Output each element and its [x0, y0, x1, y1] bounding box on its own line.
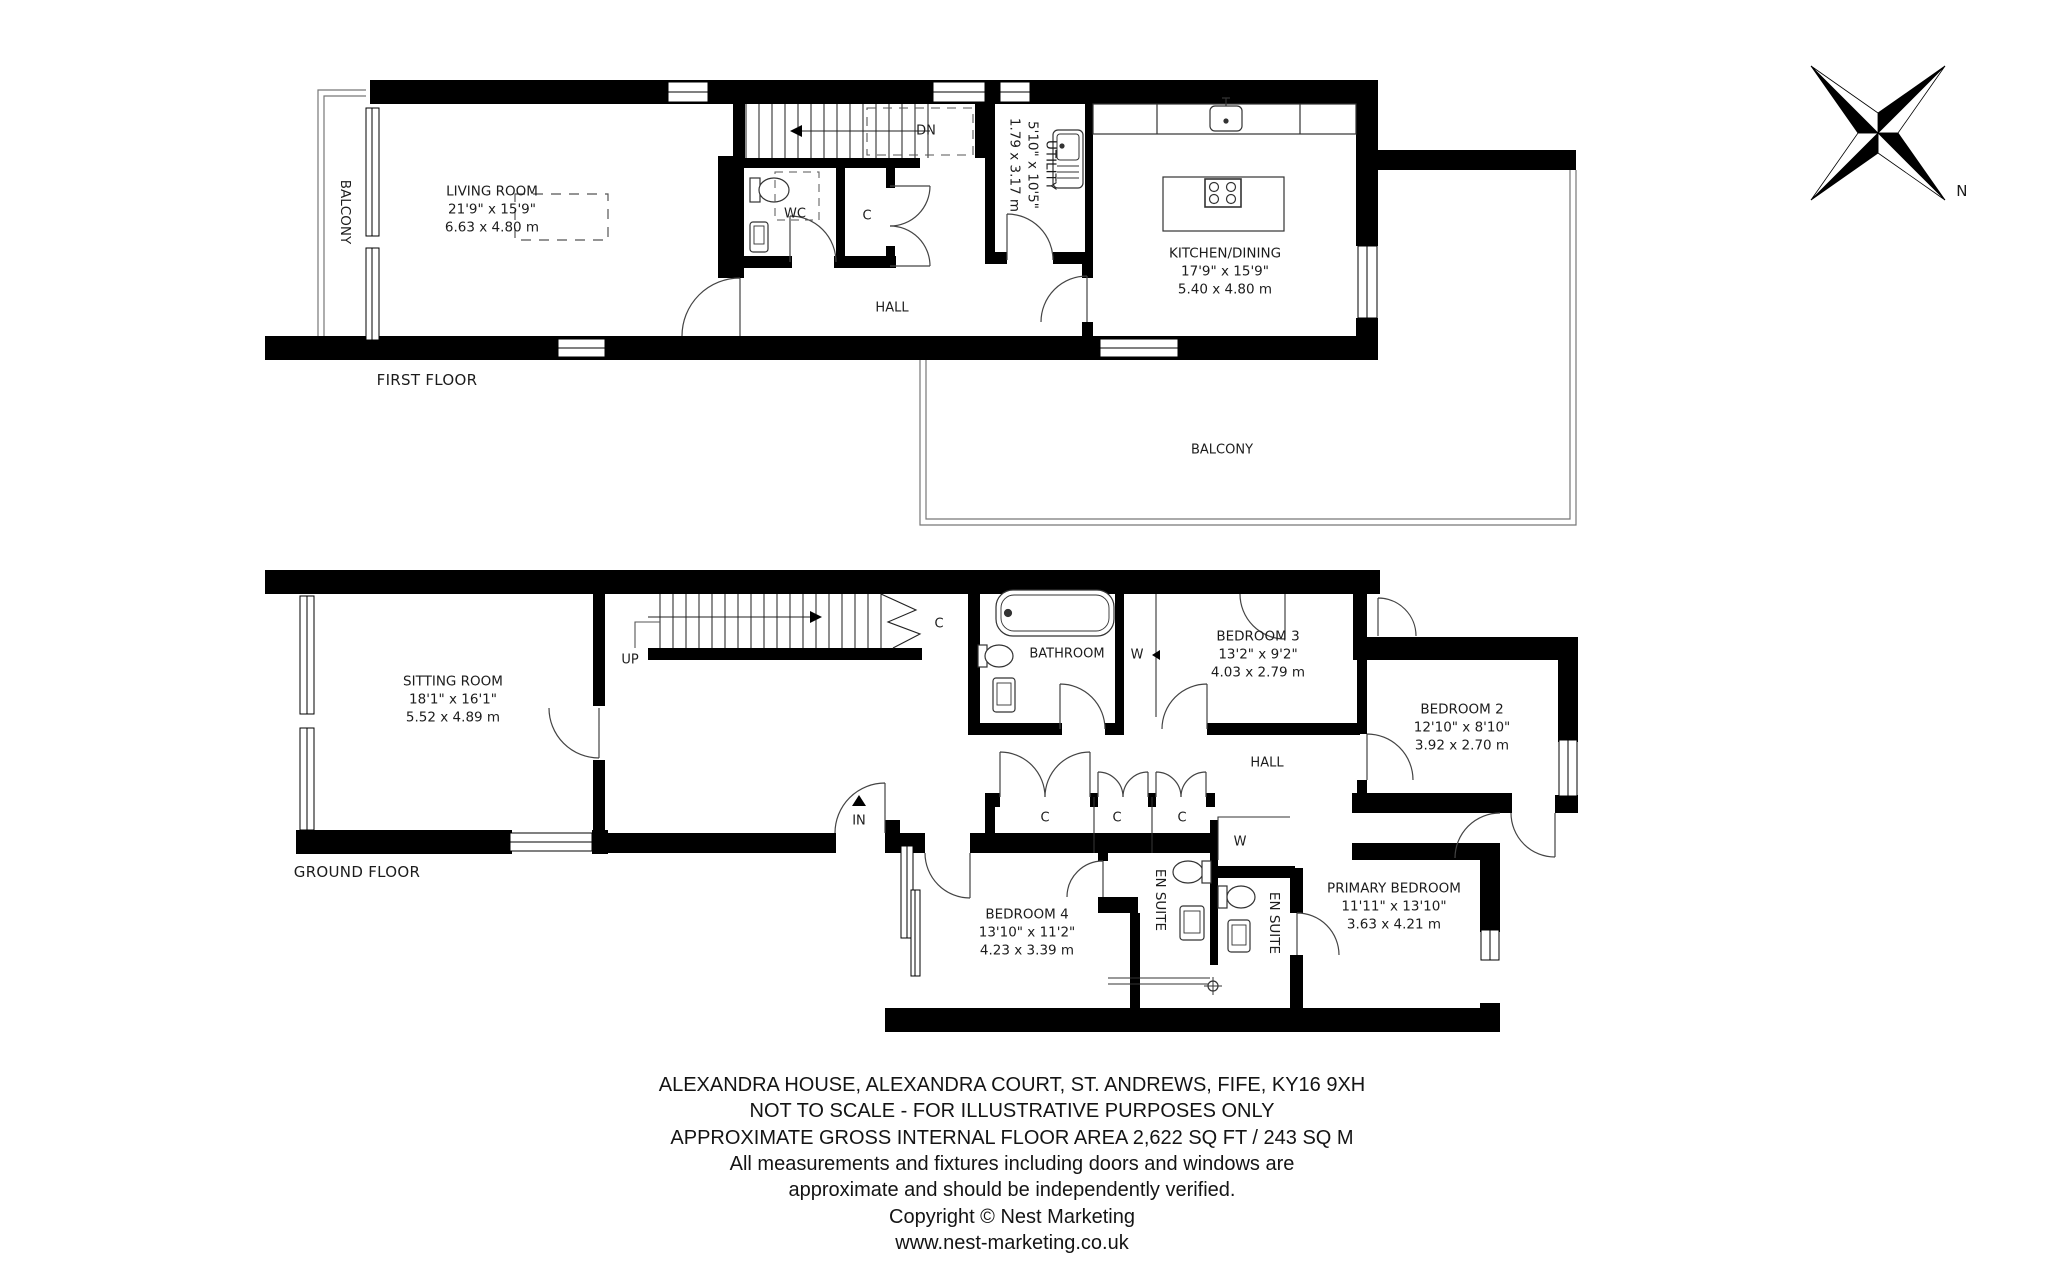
gf-cupboard-label-1: C — [934, 615, 943, 632]
wardrobe-label-2: W — [1234, 833, 1247, 850]
living-room-label: LIVING ROOM 21'9" x 15'9" 6.63 x 4.80 m — [445, 183, 539, 236]
room-dims-imperial: 11'11" x 13'10" — [1327, 898, 1461, 916]
ff-balcony-side-label: BALCONY — [335, 180, 353, 244]
room-dims-metric: 6.63 x 4.80 m — [445, 219, 539, 237]
room-dims-imperial: 12'10" x 8'10" — [1414, 719, 1511, 737]
footer-floor-area: APPROXIMATE GROSS INTERNAL FLOOR AREA 2,… — [670, 1127, 1353, 1150]
floorplan-canvas: BALCONY LIVING ROOM 21'9" x 15'9" 6.63 x… — [0, 0, 2048, 1279]
ensuite1-toilet — [1173, 861, 1203, 883]
ensuite2-cistern — [1218, 886, 1227, 908]
ground-floor-title: GROUND FLOOR — [294, 863, 420, 883]
room-name: PRIMARY BEDROOM — [1327, 880, 1461, 898]
compass-north-label: N — [1956, 182, 1968, 202]
room-dims-imperial: 13'2" x 9'2" — [1211, 646, 1305, 664]
ff-balcony-rear-label: BALCONY — [1191, 441, 1253, 458]
ground-floor-plan — [265, 570, 1578, 1032]
gf-in-arrowhead — [852, 795, 866, 806]
stairs-up-label: UP — [621, 651, 638, 668]
en-suite-label-2: EN SUITE — [1264, 892, 1282, 954]
room-name: BEDROOM 3 — [1211, 628, 1305, 646]
ff-dn-arrowhead — [790, 125, 802, 137]
gf-walls — [265, 570, 1578, 1032]
entrance-in-label: IN — [852, 812, 866, 829]
room-name: KITCHEN/DINING — [1169, 245, 1281, 263]
room-dims-metric: 3.92 x 2.70 m — [1414, 737, 1511, 755]
gf-cupboard-label-2: C — [1040, 809, 1049, 826]
sitting-room-label: SITTING ROOM 18'1" x 16'1" 5.52 x 4.89 m — [403, 673, 503, 726]
room-dims-metric: 3.63 x 4.21 m — [1327, 916, 1461, 934]
footer-disclaimer-scale: NOT TO SCALE - FOR ILLUSTRATIVE PURPOSES… — [750, 1100, 1275, 1123]
room-name: BEDROOM 4 — [979, 906, 1076, 924]
compass-rose — [1811, 66, 1945, 200]
footer-measurements-1: All measurements and fixtures including … — [730, 1153, 1295, 1176]
gf-cupboard-label-4: C — [1177, 809, 1186, 826]
first-floor-plan — [265, 80, 1576, 525]
utility-label: UTILITY 5'10" x 10'5" 1.79 x 3.17 m — [1005, 118, 1058, 212]
ff-hall-label: HALL — [875, 299, 908, 316]
gf-stairs — [635, 594, 920, 648]
wardrobe-label-1: W — [1131, 646, 1144, 663]
ff-stairs — [746, 104, 973, 158]
stairs-dn-label: DN — [916, 122, 936, 139]
room-dims-metric: 5.52 x 4.89 m — [403, 709, 503, 727]
room-dims-imperial: 13'10" x 11'2" — [979, 924, 1076, 942]
footer-copyright: Copyright © Nest Marketing — [889, 1206, 1135, 1229]
room-name: LIVING ROOM — [445, 183, 539, 201]
bedroom-2-label: BEDROOM 2 12'10" x 8'10" 3.92 x 2.70 m — [1414, 701, 1511, 754]
room-dims-imperial: 17'9" x 15'9" — [1169, 263, 1281, 281]
bathroom-toilet — [985, 645, 1013, 667]
room-dims-imperial: 18'1" x 16'1" — [403, 691, 503, 709]
room-dims-metric: 4.23 x 3.39 m — [979, 942, 1076, 960]
bedroom-3-label: BEDROOM 3 13'2" x 9'2" 4.03 x 2.79 m — [1211, 628, 1305, 681]
gf-hall-label: HALL — [1250, 754, 1283, 771]
room-dims-metric: 5.40 x 4.80 m — [1169, 281, 1281, 299]
footer-address: ALEXANDRA HOUSE, ALEXANDRA COURT, ST. AN… — [659, 1074, 1366, 1097]
room-name: SITTING ROOM — [403, 673, 503, 691]
bedroom-4-label: BEDROOM 4 13'10" x 11'2" 4.23 x 3.39 m — [979, 906, 1076, 959]
room-dims-metric: 4.03 x 2.79 m — [1211, 664, 1305, 682]
footer-website: www.nest-marketing.co.uk — [895, 1232, 1128, 1255]
room-dims-imperial: 21'9" x 15'9" — [445, 201, 539, 219]
room-name: UTILITY — [1041, 118, 1059, 212]
ff-cupboard-label: C — [862, 207, 871, 224]
room-dims-imperial: 5'10" x 10'5" — [1023, 118, 1041, 212]
wc-toilet — [759, 178, 789, 202]
first-floor-title: FIRST FLOOR — [377, 371, 478, 391]
room-dims-metric: 1.79 x 3.17 m — [1005, 118, 1023, 212]
footer-measurements-2: approximate and should be independently … — [789, 1179, 1236, 1202]
primary-bedroom-label: PRIMARY BEDROOM 11'11" x 13'10" 3.63 x 4… — [1327, 880, 1461, 933]
ensuite1-cistern — [1202, 861, 1211, 883]
en-suite-label-1: EN SUITE — [1150, 869, 1168, 931]
kitchen-dining-label: KITCHEN/DINING 17'9" x 15'9" 5.40 x 4.80… — [1169, 245, 1281, 298]
room-name: BEDROOM 2 — [1414, 701, 1511, 719]
gf-cupboard-label-3: C — [1112, 809, 1121, 826]
bathroom-label: BATHROOM — [1029, 645, 1104, 662]
wc-label: WC — [784, 205, 806, 222]
kitchen-hob — [1205, 179, 1241, 207]
ensuite2-toilet — [1227, 886, 1255, 908]
